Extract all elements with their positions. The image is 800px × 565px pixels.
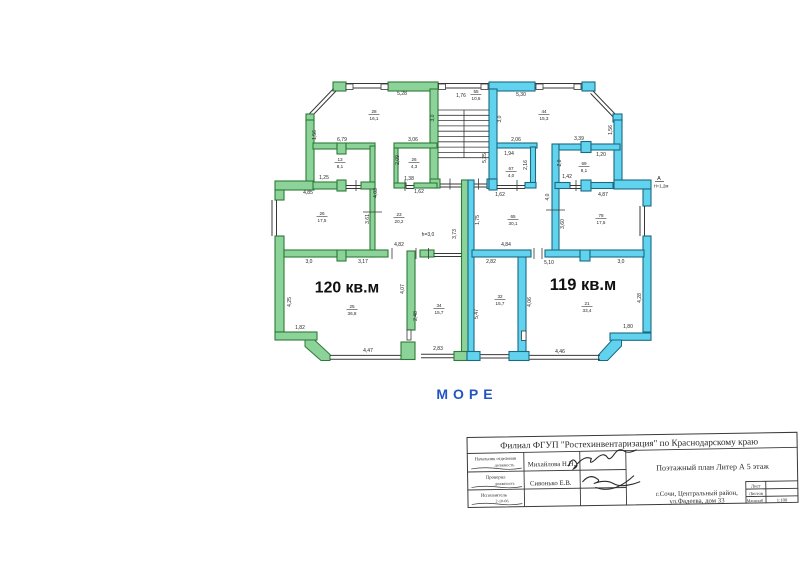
svg-text:1,38: 1,38 bbox=[404, 176, 414, 182]
svg-text:120 кв.м: 120 кв.м bbox=[315, 280, 379, 297]
svg-text:МОРЕ: МОРЕ bbox=[436, 386, 497, 402]
svg-text:Михайлова Н.Н.: Михайлова Н.Н. bbox=[528, 461, 576, 469]
svg-text:3,0: 3,0 bbox=[497, 115, 503, 122]
svg-text:3,0: 3,0 bbox=[430, 114, 436, 121]
svg-text:4,28: 4,28 bbox=[637, 293, 643, 303]
svg-text:3,39: 3,39 bbox=[574, 136, 584, 142]
svg-text:4,46: 4,46 bbox=[555, 349, 565, 355]
svg-text:1,25: 1,25 bbox=[319, 175, 329, 181]
svg-text:15,3: 15,3 bbox=[540, 116, 549, 121]
svg-text:2,0: 2,0 bbox=[557, 159, 563, 166]
svg-text:2,48: 2,48 bbox=[413, 311, 419, 321]
svg-text:5,47: 5,47 bbox=[474, 309, 480, 319]
svg-text:4,82: 4,82 bbox=[394, 242, 404, 248]
svg-text:Поэтажный план Литер А 5 этаж: Поэтажный план Литер А 5 этаж bbox=[656, 462, 769, 473]
svg-text:10,5: 10,5 bbox=[472, 96, 481, 101]
svg-text:2-10-06: 2-10-06 bbox=[495, 498, 508, 503]
svg-text:4,87: 4,87 bbox=[598, 192, 608, 198]
svg-text:8,1: 8,1 bbox=[337, 164, 344, 169]
svg-text:должность: должность bbox=[495, 462, 515, 467]
svg-text:3,17: 3,17 bbox=[358, 259, 368, 265]
svg-text:32: 32 bbox=[497, 294, 503, 299]
svg-text:20,2: 20,2 bbox=[395, 219, 404, 224]
svg-text:119 кв.м: 119 кв.м bbox=[550, 276, 616, 294]
svg-text:26: 26 bbox=[319, 211, 325, 216]
svg-text:25: 25 bbox=[349, 304, 355, 309]
svg-text:1,80: 1,80 bbox=[623, 324, 633, 330]
svg-text:Масштаб: Масштаб bbox=[747, 498, 764, 503]
svg-text:1,62: 1,62 bbox=[414, 189, 424, 195]
svg-text:Лист: Лист bbox=[751, 483, 761, 488]
svg-text:1:100: 1:100 bbox=[777, 497, 788, 502]
svg-text:4,07: 4,07 bbox=[400, 284, 406, 294]
svg-text:2,16: 2,16 bbox=[523, 160, 529, 170]
svg-text:Листов: Листов bbox=[749, 491, 764, 496]
svg-text:1,76: 1,76 bbox=[456, 93, 466, 99]
svg-text:5,25: 5,25 bbox=[482, 153, 488, 163]
svg-text:2,06: 2,06 bbox=[511, 137, 521, 143]
svg-text:67: 67 bbox=[508, 166, 514, 171]
svg-text:15,7: 15,7 bbox=[496, 301, 505, 306]
svg-text:3,0: 3,0 bbox=[306, 259, 313, 265]
svg-text:33,4: 33,4 bbox=[583, 308, 592, 313]
svg-text:4,85: 4,85 bbox=[303, 190, 313, 196]
svg-text:ул.Фадеева, дом 33: ул.Фадеева, дом 33 bbox=[669, 497, 725, 505]
svg-text:17,5: 17,5 bbox=[597, 220, 606, 225]
svg-text:44: 44 bbox=[541, 109, 547, 114]
svg-text:1,20: 1,20 bbox=[596, 152, 606, 158]
svg-text:Н=1,2м: Н=1,2м bbox=[654, 184, 669, 189]
svg-text:55: 55 bbox=[473, 89, 479, 94]
svg-text:Проверил: Проверил bbox=[486, 475, 506, 480]
svg-text:4,03: 4,03 bbox=[373, 188, 379, 198]
svg-text:26: 26 bbox=[411, 157, 417, 162]
svg-text:6,79: 6,79 bbox=[337, 137, 347, 143]
svg-text:3,0: 3,0 bbox=[618, 259, 625, 265]
svg-text:21: 21 bbox=[584, 301, 590, 306]
svg-text:1,82: 1,82 bbox=[295, 325, 305, 331]
svg-text:4,25: 4,25 bbox=[287, 297, 293, 307]
svg-text:13: 13 bbox=[337, 157, 343, 162]
svg-text:15,7: 15,7 bbox=[435, 310, 444, 315]
svg-text:2,09: 2,09 bbox=[395, 155, 401, 165]
svg-text:65: 65 bbox=[510, 214, 516, 219]
svg-text:А: А bbox=[657, 176, 661, 182]
svg-text:Сивонько Е.В.: Сивонько Е.В. bbox=[530, 480, 572, 488]
svg-text:5,10: 5,10 bbox=[544, 260, 554, 266]
svg-text:1,56: 1,56 bbox=[312, 130, 318, 140]
svg-text:5,28: 5,28 bbox=[397, 91, 407, 97]
svg-text:4,0: 4,0 bbox=[545, 193, 551, 200]
svg-text:34: 34 bbox=[436, 303, 442, 308]
svg-text:30,1: 30,1 bbox=[509, 221, 518, 226]
svg-text:Начальник отделения: Начальник отделения bbox=[475, 456, 516, 462]
svg-text:23: 23 bbox=[396, 212, 402, 217]
svg-text:г.Сочи, Центральный район,: г.Сочи, Центральный район, bbox=[656, 490, 738, 498]
svg-text:4,47: 4,47 bbox=[363, 348, 373, 354]
svg-text:4,06: 4,06 bbox=[527, 297, 533, 307]
svg-text:69: 69 bbox=[581, 161, 587, 166]
svg-text:78: 78 bbox=[598, 213, 604, 218]
svg-text:4,84: 4,84 bbox=[501, 242, 511, 248]
svg-text:1,62: 1,62 bbox=[495, 192, 505, 198]
svg-text:5,30: 5,30 bbox=[516, 92, 526, 98]
svg-text:3,61: 3,61 bbox=[365, 214, 371, 224]
svg-text:1,75: 1,75 bbox=[475, 215, 481, 225]
svg-text:3,06: 3,06 bbox=[408, 137, 418, 143]
svg-text:3,60: 3,60 bbox=[560, 219, 566, 229]
svg-text:2,83: 2,83 bbox=[433, 346, 443, 352]
svg-text:16,1: 16,1 bbox=[370, 116, 379, 121]
svg-text:17,5: 17,5 bbox=[318, 218, 327, 223]
svg-text:1,94: 1,94 bbox=[504, 151, 514, 157]
svg-text:36,8: 36,8 bbox=[348, 311, 357, 316]
svg-text:3,73: 3,73 bbox=[452, 229, 458, 239]
svg-text:4,0: 4,0 bbox=[508, 173, 515, 178]
svg-text:2,82: 2,82 bbox=[486, 259, 496, 265]
svg-text:h=3,0: h=3,0 bbox=[422, 232, 435, 238]
svg-text:1,56: 1,56 bbox=[608, 125, 614, 135]
svg-text:1,42: 1,42 bbox=[562, 174, 572, 180]
svg-text:должность: должность bbox=[495, 481, 515, 486]
svg-text:8,1: 8,1 bbox=[581, 168, 588, 173]
svg-text:4,3: 4,3 bbox=[411, 164, 418, 169]
svg-text:28: 28 bbox=[371, 109, 377, 114]
